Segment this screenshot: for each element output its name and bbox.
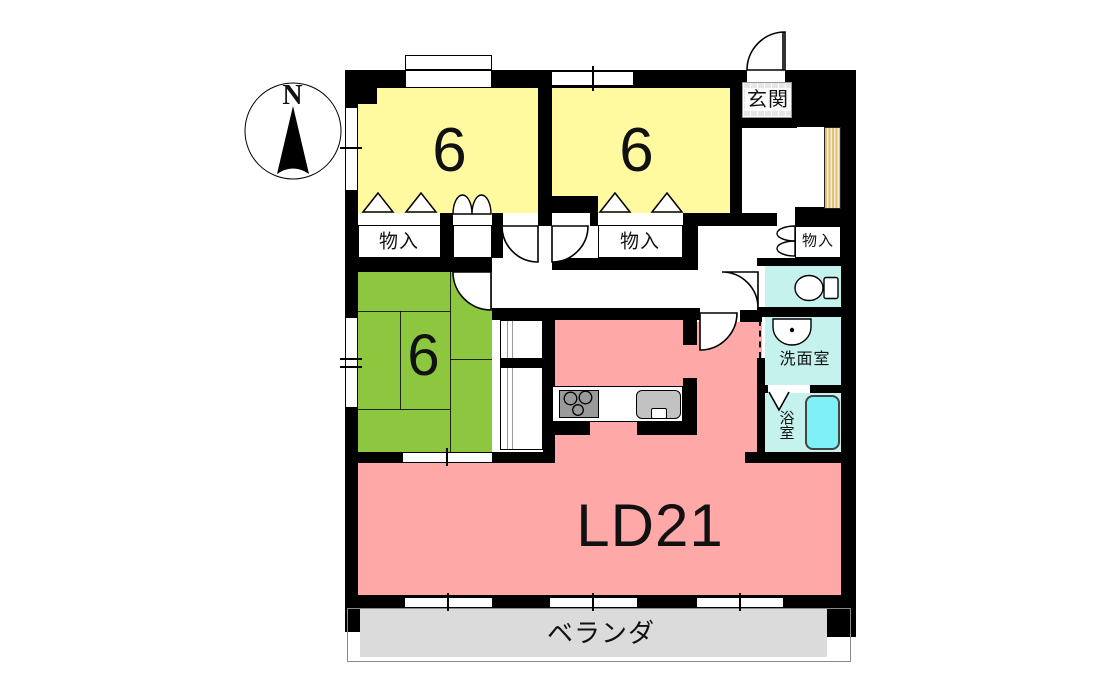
room-toilet bbox=[765, 266, 841, 307]
shoe-cabinet bbox=[824, 127, 841, 209]
room-living-pass-b bbox=[683, 435, 697, 463]
room-living-pass-a bbox=[683, 345, 697, 378]
wall bbox=[552, 258, 683, 270]
window-tick bbox=[446, 448, 448, 466]
wall bbox=[590, 213, 598, 226]
north-arrow-icon bbox=[277, 106, 309, 174]
washroom-entry-dashed bbox=[759, 320, 761, 358]
wall bbox=[637, 422, 697, 435]
compass-north-label: N bbox=[282, 82, 303, 110]
tatami-line bbox=[400, 311, 401, 410]
storage-a-label: 物入 bbox=[379, 233, 419, 252]
faucet-icon bbox=[651, 408, 667, 419]
wall bbox=[757, 307, 841, 317]
storage-c-label: 物入 bbox=[802, 234, 834, 249]
wall bbox=[757, 358, 765, 452]
wall bbox=[795, 207, 841, 227]
closet-slide-line bbox=[507, 321, 508, 449]
stove-icon bbox=[559, 390, 599, 418]
bay-window bbox=[405, 55, 492, 88]
closet-slide-line bbox=[512, 321, 513, 449]
washroom-label: 洗面室 bbox=[779, 352, 830, 368]
wall bbox=[492, 452, 555, 463]
tatami-line bbox=[450, 359, 492, 360]
bedroom-a-label: 6 bbox=[432, 120, 467, 182]
wall bbox=[538, 88, 552, 226]
window-tick bbox=[592, 66, 594, 91]
bedroom-b-label: 6 bbox=[619, 120, 654, 182]
wall bbox=[790, 88, 841, 127]
window-tick bbox=[340, 147, 362, 149]
wall bbox=[745, 452, 841, 463]
window-tick bbox=[340, 358, 362, 360]
window-left-bedroom-a bbox=[345, 108, 358, 190]
wall bbox=[683, 213, 698, 270]
wall bbox=[345, 258, 492, 272]
wall bbox=[698, 213, 777, 226]
wall bbox=[440, 213, 453, 258]
entrance-label: 玄関 bbox=[745, 89, 791, 111]
bay-window-line bbox=[406, 69, 491, 71]
wall bbox=[742, 117, 797, 128]
veranda-label: ベランダ bbox=[547, 620, 655, 646]
wall bbox=[810, 385, 841, 393]
tatami-line bbox=[450, 272, 451, 452]
window-tick bbox=[340, 366, 362, 368]
wall bbox=[500, 358, 543, 368]
wall bbox=[730, 88, 742, 218]
room-living-hall-strip bbox=[697, 322, 762, 463]
window-tick bbox=[739, 593, 741, 611]
room-bathroom bbox=[765, 393, 841, 452]
wall bbox=[683, 320, 697, 345]
window-left-japanese bbox=[345, 318, 358, 407]
bathroom-label: 浴室 bbox=[779, 410, 794, 440]
wall bbox=[552, 422, 590, 435]
window-tick bbox=[592, 593, 594, 611]
living-dining-label: LD21 bbox=[576, 496, 723, 556]
wall bbox=[552, 196, 598, 213]
wall bbox=[757, 258, 841, 266]
tatami-line bbox=[358, 409, 450, 410]
wall bbox=[492, 213, 503, 258]
wall bbox=[841, 70, 856, 610]
japanese-room-label: 6 bbox=[407, 327, 440, 385]
storage-b-label: 物入 bbox=[620, 233, 660, 252]
floor-plan: N 6 6 6 LD21 玄関 物入 物入 物入 洗面室 浴室 ベランダ bbox=[0, 0, 1100, 700]
tatami-line bbox=[358, 311, 450, 312]
bedroom-a-closet-box bbox=[453, 225, 492, 258]
window-tick bbox=[447, 593, 449, 611]
wall bbox=[358, 452, 403, 463]
wall bbox=[757, 385, 768, 393]
entrance-door-swing-icon bbox=[747, 32, 785, 70]
wall bbox=[492, 308, 700, 320]
